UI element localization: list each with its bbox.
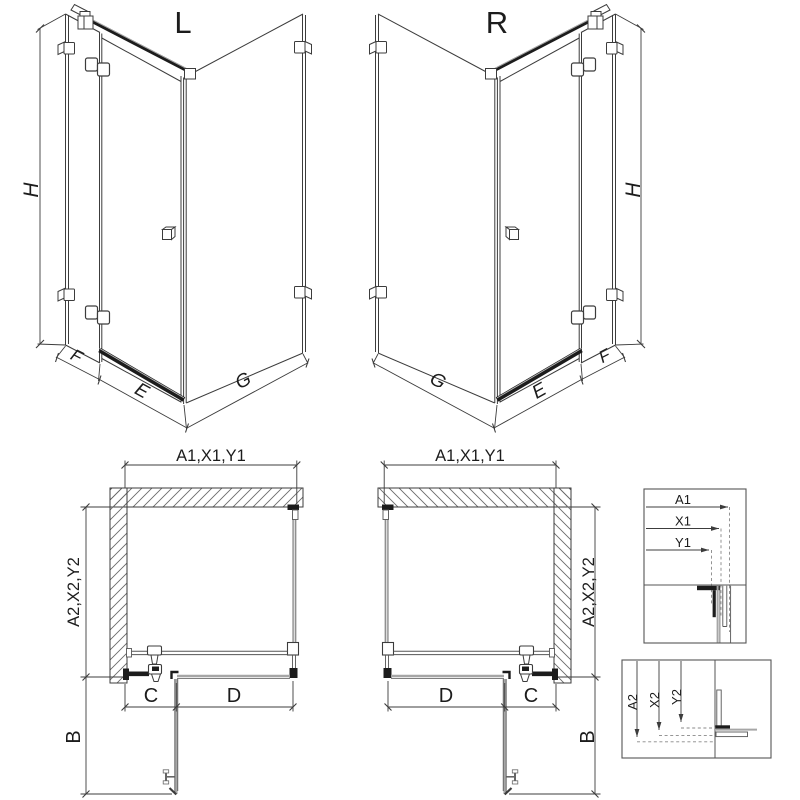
plan-right-dim-c: C [524, 685, 538, 707]
wall-profile-section-top [697, 586, 731, 643]
detail-box-width-offsets [644, 489, 746, 643]
iso-left-dim-e: E [131, 379, 153, 404]
wall-profile-section-side [716, 690, 758, 737]
iso-left-dim-h: H [20, 182, 43, 198]
detail-a1-label: A1 [675, 492, 691, 507]
plan-left-dim-depth: A2,X2,Y2 [65, 557, 83, 627]
plan-view-right [378, 461, 601, 798]
plan-right-dim-width: A1,X1,Y1 [435, 447, 505, 465]
detail-y1-label: Y1 [675, 535, 691, 550]
plan-right-dim-depth: A2,X2,Y2 [580, 557, 598, 627]
detail-box-depth-offsets [622, 660, 771, 758]
iso-right-variant-label: R [486, 5, 508, 40]
line-art [36, 5, 771, 798]
plan-left-dim-d: D [227, 685, 241, 707]
shower-enclosure-technical-drawing: L H F E G R H F E G A1,X1,Y1 A2,X2,Y2 C … [0, 0, 800, 800]
plan-view-left [81, 461, 304, 798]
iso-right-dim-e: E [529, 379, 551, 404]
detail-y2-label: Y2 [669, 689, 684, 705]
plan-left-dim-width: A1,X1,Y1 [176, 447, 246, 465]
detail-x2-label: X2 [647, 692, 662, 708]
iso-view-left [36, 5, 312, 433]
iso-left-variant-label: L [174, 5, 191, 40]
iso-right-dim-h: H [622, 182, 645, 198]
plan-left-dim-b: B [63, 730, 85, 743]
plan-left-dim-c: C [144, 685, 158, 707]
iso-view-right [370, 5, 646, 433]
iso-right-dim-g: G [426, 368, 449, 393]
iso-left-dim-g: G [232, 368, 255, 393]
detail-a2-label: A2 [625, 694, 640, 710]
plan-right-dim-b: B [577, 730, 599, 743]
detail-x1-label: X1 [675, 514, 691, 529]
plan-right-dim-d: D [439, 685, 453, 707]
